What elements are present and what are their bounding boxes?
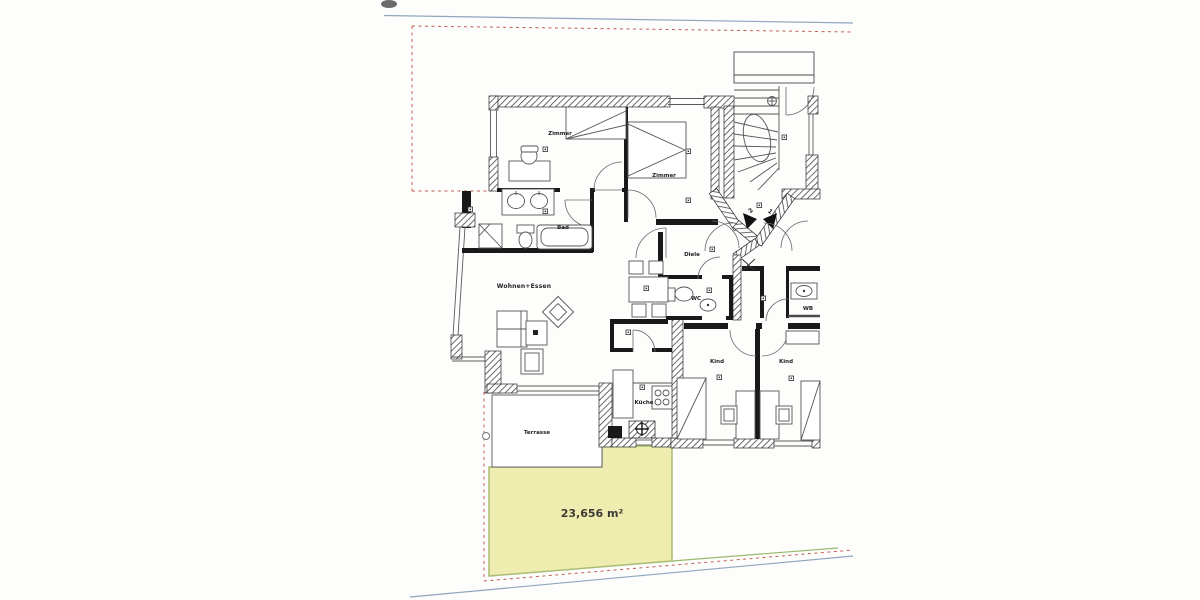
stair-circle-plus-icon bbox=[768, 97, 777, 106]
window-kind2-south bbox=[774, 441, 812, 446]
zimmer1-furniture bbox=[509, 107, 626, 181]
kind2-shelf bbox=[786, 331, 819, 344]
stair-landing bbox=[734, 52, 814, 83]
entry-door-arc-right bbox=[781, 221, 808, 248]
garden-area-label: 23,656 m² bbox=[561, 507, 624, 520]
label-zimmer1: Zimmer bbox=[548, 131, 572, 137]
label-zimmer2: Zimmer bbox=[652, 173, 676, 179]
zimmer2-furniture bbox=[628, 122, 686, 178]
stairwell bbox=[734, 52, 814, 190]
label-kueche: Küche bbox=[635, 400, 654, 406]
bed-zimmer1 bbox=[566, 107, 626, 139]
kind1-furniture bbox=[677, 378, 755, 439]
boundary-point-marker bbox=[483, 433, 490, 440]
boundary-green-line bbox=[672, 548, 838, 561]
window-west-living bbox=[453, 227, 465, 336]
kind2-furniture bbox=[760, 331, 820, 440]
terrace-label: Terrasse bbox=[524, 430, 550, 436]
bed-zimmer2 bbox=[628, 122, 686, 178]
toilet-bowl bbox=[519, 232, 532, 248]
window-terrace bbox=[517, 386, 600, 391]
floor-plan-canvas: 23,656 m² Terrasse bbox=[0, 0, 1200, 600]
kitchen-counter bbox=[613, 370, 633, 418]
bathroom-fixtures bbox=[479, 189, 592, 249]
kind1-desk bbox=[736, 391, 755, 439]
window-stair-east bbox=[809, 114, 813, 155]
living-room-furniture bbox=[497, 261, 668, 374]
side-table-marker bbox=[533, 330, 538, 335]
window-kind1-south bbox=[703, 440, 734, 445]
window-kitchen-south bbox=[636, 440, 652, 445]
floor-plan-scan: 23,656 m² Terrasse bbox=[0, 0, 1200, 600]
label-diele: Diele bbox=[684, 252, 700, 258]
wc-toilet-tank bbox=[668, 288, 675, 301]
label-kind1: Kind bbox=[710, 359, 724, 365]
scan-artifact bbox=[381, 0, 397, 8]
stove bbox=[652, 386, 672, 409]
window-north bbox=[668, 99, 706, 105]
label-wohnen-essen: Wohnen+Essen bbox=[497, 283, 551, 290]
entry-door-number-2: 2 bbox=[747, 207, 755, 215]
window-west-zimmer1 bbox=[491, 110, 497, 157]
wb-fixtures bbox=[791, 283, 817, 299]
label-wc: WC bbox=[691, 296, 701, 302]
terrace: Terrasse bbox=[492, 395, 602, 467]
label-bad: Bad bbox=[557, 225, 569, 231]
label-wb: WB bbox=[803, 306, 813, 312]
label-kind2: Kind bbox=[779, 359, 793, 365]
boundary-blue-line-top bbox=[384, 16, 853, 24]
